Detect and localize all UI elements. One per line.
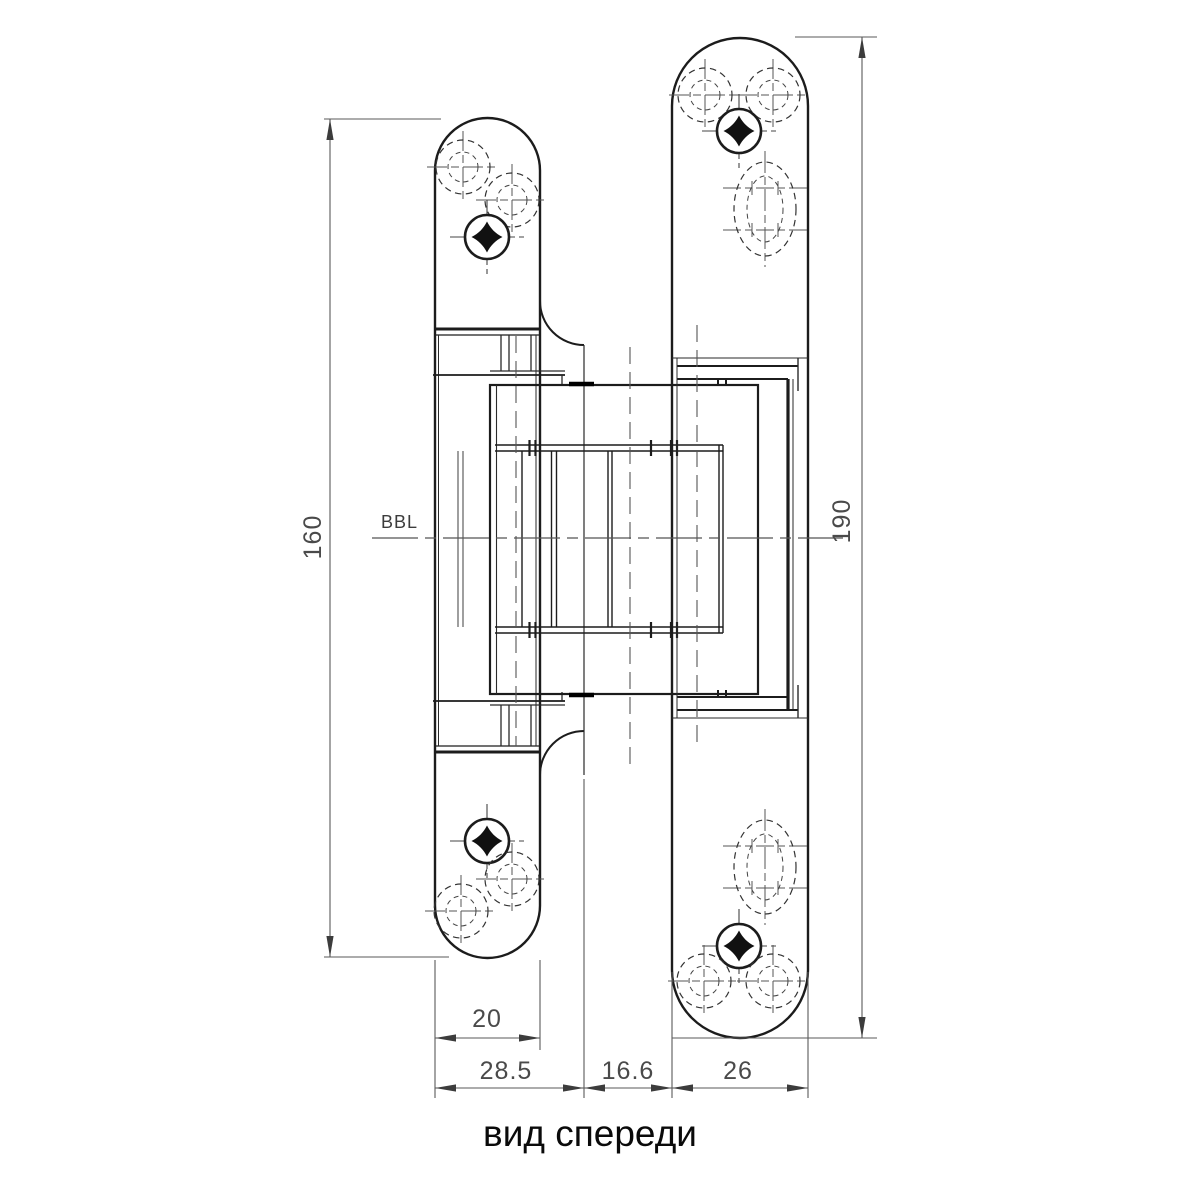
dim-28-5-label: 28.5 [480,1057,533,1085]
hinge-drawing-page: 160 190 20 28.5 16.6 26 BBL вид спереди [0,0,1200,1200]
dim-16-6-label: 16.6 [602,1057,655,1085]
dimension-bottom-20: 20 [435,960,540,1050]
bbl-label: BBL [381,512,418,532]
caption-front-view: вид спереди [483,1113,697,1154]
dim-26-label: 26 [723,1057,753,1085]
dim-20-label: 20 [472,1005,502,1033]
reference-line-bbl: BBL [381,512,418,532]
dim-160-label: 160 [299,515,327,560]
hinge-technical-drawing: 160 190 20 28.5 16.6 26 BBL вид спереди [0,0,1200,1200]
dim-190-label: 190 [828,499,856,544]
